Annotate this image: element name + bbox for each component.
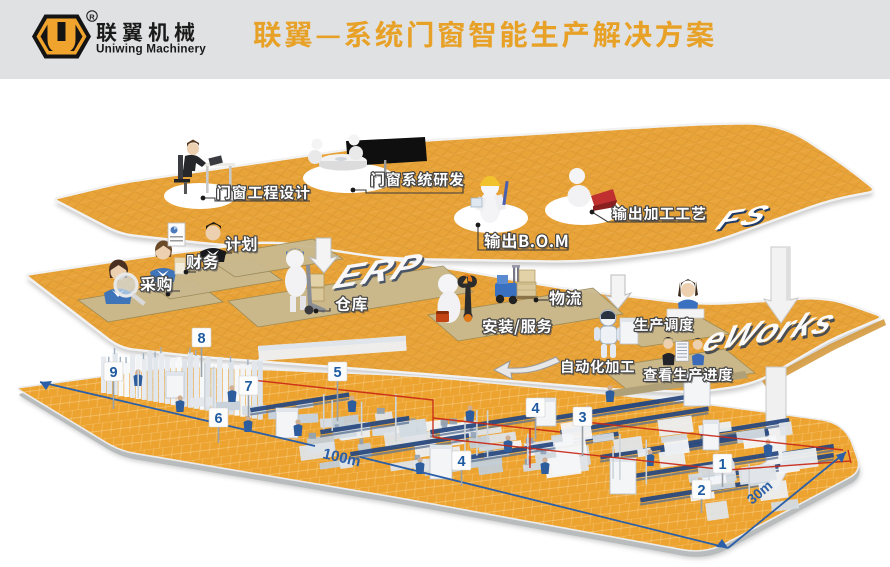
svg-text:9: 9 — [109, 365, 117, 381]
svg-text:7: 7 — [244, 379, 252, 395]
svg-text:3: 3 — [578, 410, 586, 426]
svg-text:6: 6 — [214, 411, 222, 427]
svg-text:5: 5 — [333, 365, 341, 381]
svg-text:1: 1 — [718, 457, 726, 473]
svg-text:8: 8 — [197, 331, 205, 347]
svg-text:4: 4 — [457, 454, 465, 470]
svg-text:Uniwing Machinery: Uniwing Machinery — [96, 43, 206, 56]
svg-text:2: 2 — [697, 483, 705, 499]
svg-text:R: R — [89, 13, 95, 22]
svg-text:4: 4 — [531, 401, 539, 417]
